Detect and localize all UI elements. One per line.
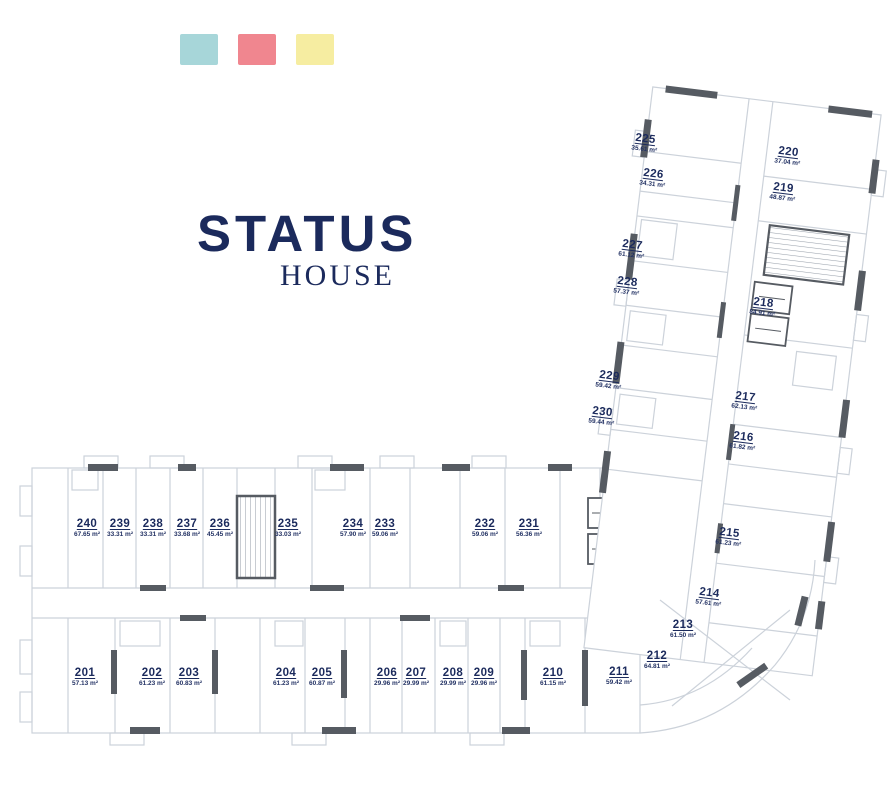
unit-area: 59.42 m² bbox=[606, 679, 632, 686]
unit-label[interactable]: 209 29.96 m² bbox=[471, 667, 497, 687]
unit-number: 232 bbox=[472, 518, 498, 530]
unit-area: 33.03 m² bbox=[275, 531, 301, 538]
unit-number: 203 bbox=[176, 667, 202, 679]
unit-label[interactable]: 231 56.36 m² bbox=[516, 518, 542, 538]
unit-area: 61.50 m² bbox=[670, 632, 696, 639]
unit-number: 207 bbox=[403, 667, 429, 679]
unit-number: 210 bbox=[540, 667, 566, 679]
unit-number: 240 bbox=[74, 518, 100, 530]
unit-number: 233 bbox=[372, 518, 398, 530]
unit-area: 56.36 m² bbox=[516, 531, 542, 538]
unit-label[interactable]: 229 59.42 m² bbox=[595, 368, 623, 391]
unit-label[interactable]: 207 29.99 m² bbox=[403, 667, 429, 687]
unit-label[interactable]: 212 64.81 m² bbox=[644, 650, 670, 670]
unit-label[interactable]: 240 67.65 m² bbox=[74, 518, 100, 538]
unit-area: 29.99 m² bbox=[440, 680, 466, 687]
unit-number: 211 bbox=[606, 666, 632, 678]
unit-area: 33.68 m² bbox=[174, 531, 200, 538]
unit-label[interactable]: 216 61.82 m² bbox=[729, 429, 757, 452]
unit-number: 236 bbox=[207, 518, 233, 530]
unit-area: 61.23 m² bbox=[273, 680, 299, 687]
unit-number: 234 bbox=[340, 518, 366, 530]
unit-label[interactable]: 235 33.03 m² bbox=[275, 518, 301, 538]
unit-area: 29.96 m² bbox=[471, 680, 497, 687]
unit-number: 235 bbox=[275, 518, 301, 530]
unit-number: 239 bbox=[107, 518, 133, 530]
units-layer: 201 57.13 m² 202 61.23 m² 203 60.83 m² 2… bbox=[0, 0, 887, 804]
unit-label[interactable]: 213 61.50 m² bbox=[670, 619, 696, 639]
unit-area: 57.13 m² bbox=[72, 680, 98, 687]
unit-label[interactable]: 215 61.23 m² bbox=[715, 525, 743, 548]
unit-area: 33.31 m² bbox=[107, 531, 133, 538]
unit-label[interactable]: 230 59.44 m² bbox=[588, 404, 616, 427]
unit-area: 29.96 m² bbox=[374, 680, 400, 687]
unit-number: 205 bbox=[309, 667, 335, 679]
unit-area: 29.99 m² bbox=[403, 680, 429, 687]
unit-label[interactable]: 226 34.31 m² bbox=[639, 166, 667, 189]
unit-number: 212 bbox=[644, 650, 670, 662]
unit-area: 60.87 m² bbox=[309, 680, 335, 687]
unit-label[interactable]: 210 61.15 m² bbox=[540, 667, 566, 687]
unit-number: 201 bbox=[72, 667, 98, 679]
unit-label[interactable]: 239 33.31 m² bbox=[107, 518, 133, 538]
unit-label[interactable]: 206 29.96 m² bbox=[374, 667, 400, 687]
unit-label[interactable]: 205 60.87 m² bbox=[309, 667, 335, 687]
unit-label[interactable]: 237 33.68 m² bbox=[174, 518, 200, 538]
unit-label[interactable]: 225 35.61 m² bbox=[631, 131, 659, 154]
unit-area: 67.65 m² bbox=[74, 531, 100, 538]
unit-number: 237 bbox=[174, 518, 200, 530]
unit-label[interactable]: 227 61.12 m² bbox=[618, 237, 646, 260]
unit-number: 231 bbox=[516, 518, 542, 530]
unit-label[interactable]: 234 57.90 m² bbox=[340, 518, 366, 538]
unit-label[interactable]: 218 84.91 m² bbox=[749, 295, 777, 318]
unit-label[interactable]: 217 62.13 m² bbox=[731, 389, 759, 412]
unit-label[interactable]: 228 57.37 m² bbox=[613, 274, 641, 297]
unit-number: 209 bbox=[471, 667, 497, 679]
unit-number: 202 bbox=[139, 667, 165, 679]
unit-area: 45.45 m² bbox=[207, 531, 233, 538]
unit-label[interactable]: 204 61.23 m² bbox=[273, 667, 299, 687]
unit-number: 213 bbox=[670, 619, 696, 631]
unit-label[interactable]: 208 29.99 m² bbox=[440, 667, 466, 687]
unit-area: 33.31 m² bbox=[140, 531, 166, 538]
unit-area: 64.81 m² bbox=[644, 663, 670, 670]
unit-label[interactable]: 203 60.83 m² bbox=[176, 667, 202, 687]
unit-label[interactable]: 220 37.04 m² bbox=[774, 144, 802, 167]
unit-label[interactable]: 201 57.13 m² bbox=[72, 667, 98, 687]
unit-label[interactable]: 238 33.31 m² bbox=[140, 518, 166, 538]
unit-label[interactable]: 219 48.87 m² bbox=[769, 180, 797, 203]
unit-area: 60.83 m² bbox=[176, 680, 202, 687]
unit-label[interactable]: 202 61.23 m² bbox=[139, 667, 165, 687]
unit-label[interactable]: 233 59.06 m² bbox=[372, 518, 398, 538]
unit-area: 59.06 m² bbox=[372, 531, 398, 538]
unit-number: 238 bbox=[140, 518, 166, 530]
unit-label[interactable]: 211 59.42 m² bbox=[606, 666, 632, 686]
unit-label[interactable]: 236 45.45 m² bbox=[207, 518, 233, 538]
unit-label[interactable]: 232 59.06 m² bbox=[472, 518, 498, 538]
unit-number: 204 bbox=[273, 667, 299, 679]
unit-area: 61.23 m² bbox=[139, 680, 165, 687]
unit-number: 206 bbox=[374, 667, 400, 679]
unit-number: 208 bbox=[440, 667, 466, 679]
unit-area: 59.06 m² bbox=[472, 531, 498, 538]
unit-area: 57.90 m² bbox=[340, 531, 366, 538]
unit-area: 61.15 m² bbox=[540, 680, 566, 687]
unit-label[interactable]: 214 57.61 m² bbox=[695, 585, 723, 608]
